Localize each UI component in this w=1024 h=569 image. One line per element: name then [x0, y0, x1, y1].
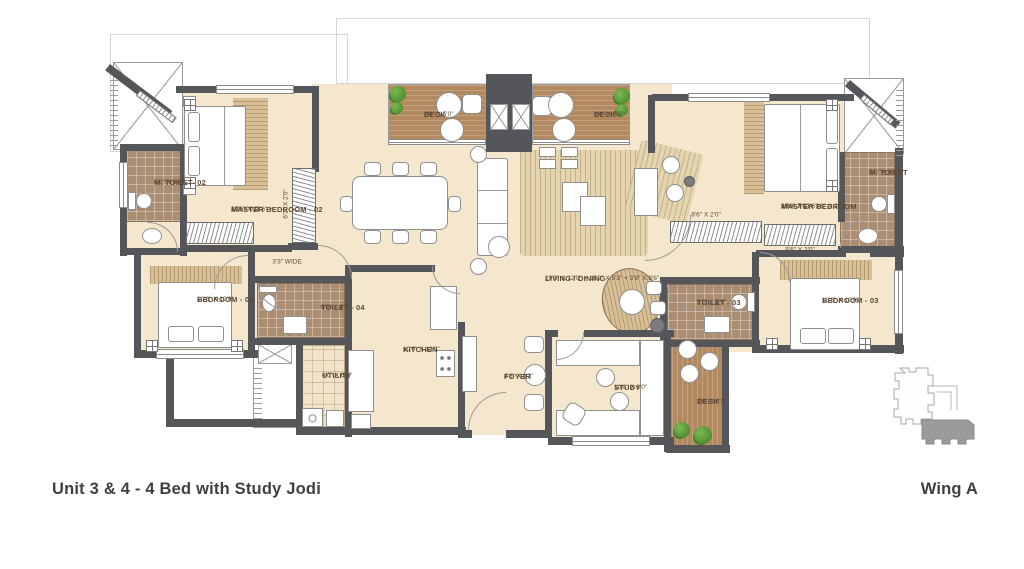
chair [524, 336, 544, 353]
key-plan-connector [933, 386, 957, 410]
wall-segment [166, 352, 174, 426]
pouf [488, 236, 510, 258]
key-plan [884, 362, 980, 454]
floor-plan: M. TOILET- 02 5'0" X 8'0" MASTER BEDROOM… [0, 0, 1024, 569]
roof-projection-outline [336, 18, 870, 84]
pergola-edge [896, 88, 904, 156]
window [688, 93, 770, 102]
washing-machine [302, 408, 323, 427]
window [119, 162, 128, 208]
dining-table [352, 176, 448, 230]
section-marker [859, 338, 871, 350]
wood-panel-b03 [780, 260, 872, 280]
pillow [188, 146, 200, 176]
wall-segment [545, 330, 552, 438]
wall-segment [312, 86, 319, 172]
pillow [828, 328, 854, 344]
window [894, 270, 903, 334]
passage-width-label: 3'3" WIDE [272, 257, 302, 266]
chair [646, 281, 662, 295]
pillow [168, 326, 194, 342]
utility-sink [326, 410, 344, 427]
side-table [684, 176, 695, 187]
plant-icon [674, 422, 690, 438]
deck-chair [678, 340, 697, 359]
floor-cushion [561, 159, 578, 169]
sofa-cushion-line [478, 223, 507, 224]
section-marker [826, 180, 838, 192]
plant-icon [694, 426, 712, 444]
kitchen-sink [351, 414, 371, 429]
plant-icon [390, 86, 406, 102]
washbasin-counter [283, 316, 307, 334]
dining-chair [364, 162, 381, 176]
window [572, 436, 650, 446]
dining-chair [392, 162, 409, 176]
blanket-fold [224, 107, 225, 185]
dining-chair [340, 196, 353, 212]
sliding-door [532, 139, 630, 145]
duct-cross [258, 344, 292, 364]
sliding-door [388, 139, 486, 145]
section-marker [231, 340, 243, 352]
side-table [470, 146, 487, 163]
wall-segment [120, 144, 186, 151]
wall-segment [648, 95, 655, 153]
window [216, 85, 294, 94]
pillow [826, 148, 838, 182]
side-table [470, 258, 487, 275]
key-plan-outline [894, 368, 934, 424]
chair [650, 301, 666, 315]
wall-segment [345, 265, 435, 272]
wall-segment [182, 245, 292, 252]
pillow [826, 110, 838, 144]
wardrobe [186, 222, 254, 244]
wc-icon [136, 193, 152, 209]
deck-chair [552, 118, 576, 142]
chair [596, 368, 615, 387]
wall-segment [134, 250, 141, 358]
wardrobe-dim-label: 8'6" X 2'0" [691, 210, 721, 219]
wardrobe-dim-label: 8'6" X 2'0" [785, 245, 815, 254]
pillow [188, 112, 200, 142]
wc-cistern [887, 194, 895, 214]
section-marker [184, 99, 196, 111]
plant-icon [391, 102, 403, 114]
section-marker [146, 340, 158, 352]
sofa-cushion-line [478, 190, 507, 191]
wall-segment [664, 332, 671, 452]
wall-segment [288, 243, 318, 250]
section-marker [826, 99, 838, 111]
deck-chair [440, 118, 464, 142]
wall-segment [666, 445, 730, 453]
elevator-car [512, 104, 530, 130]
deck-table [462, 94, 482, 114]
unit-caption: Unit 3 & 4 - 4 Bed with Study Jodi [52, 480, 321, 499]
coffee-table [580, 196, 606, 226]
wardrobe-dim-label: 6'3" X 2'0" [281, 189, 290, 219]
key-plan-highlighted-wing [922, 420, 974, 444]
washbasin-counter [704, 316, 730, 333]
wall-segment [166, 419, 302, 427]
deck-chair [700, 352, 719, 371]
wall-segment [660, 340, 760, 347]
deck-chair [548, 92, 574, 118]
dining-chair [364, 230, 381, 244]
floor-cushion [539, 159, 556, 169]
wing-caption: Wing A [921, 480, 978, 499]
chair [610, 392, 629, 411]
dining-chair [420, 230, 437, 244]
wall-segment [296, 427, 466, 435]
deck-chair [680, 364, 699, 383]
pergola-edge [110, 80, 118, 146]
section-marker [766, 338, 778, 350]
wc-cistern [128, 192, 136, 210]
wardrobe-dim-label: 6'6" X 2'0" [206, 244, 236, 253]
blanket-fold [800, 105, 801, 191]
shoe-cabinet [462, 336, 477, 392]
key-plan-connector [937, 392, 951, 410]
dining-chair [392, 230, 409, 244]
stool [650, 318, 665, 333]
kitchen-counter [348, 350, 374, 412]
desk [634, 168, 658, 216]
wall-segment [660, 277, 760, 284]
plant-icon [614, 88, 630, 104]
duct-louver [253, 366, 262, 424]
chair [662, 156, 680, 174]
wood-panel-mbr [744, 96, 764, 194]
elevator-car [490, 104, 508, 130]
chair [666, 184, 684, 202]
round-table [619, 289, 645, 315]
floor-cushion [539, 147, 556, 157]
pillow [198, 326, 224, 342]
wc-icon [871, 196, 887, 212]
dining-chair [448, 196, 461, 212]
wc-cistern [747, 292, 755, 312]
floor-cushion [561, 147, 578, 157]
pillow [800, 328, 826, 344]
chair [524, 394, 544, 411]
dining-chair [420, 162, 437, 176]
wardrobe [764, 224, 836, 246]
